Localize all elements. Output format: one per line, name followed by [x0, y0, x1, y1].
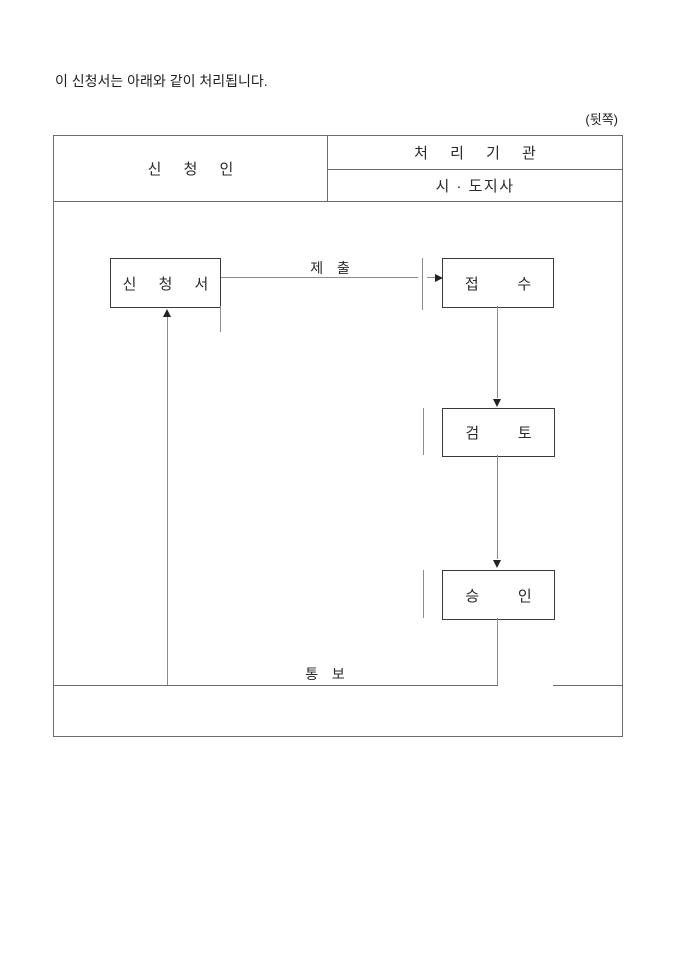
table-right-border: [622, 135, 623, 737]
applicant-header-cell: 신 청 인: [54, 136, 327, 201]
application-box: 신 청 서: [110, 258, 221, 308]
processing-agency-header-cell: 처 리 기 관: [328, 136, 622, 169]
arrow-down-icon: [493, 560, 501, 568]
form-back-page: { "page": { "intro_text": "이 신청서는 아래와 같이…: [0, 0, 680, 962]
review-tick-bar: [423, 408, 424, 455]
header-bottom-divider: [53, 201, 623, 202]
table-left-border: [53, 135, 54, 737]
arrow-right-icon: [435, 274, 443, 282]
arrow-up-icon: [163, 309, 171, 317]
governor-subheader-cell: 시 · 도지사: [328, 170, 622, 201]
approval-box: 승 인: [442, 570, 555, 620]
submit-label: 제 출: [280, 258, 380, 278]
submit-line: [221, 277, 418, 278]
bottom-divider-left-segment: [53, 685, 498, 686]
application-corner-stub: [220, 306, 221, 332]
table-bottom-border: [53, 736, 623, 737]
review-to-approval-line: [497, 455, 498, 559]
notify-up-line: [167, 316, 168, 685]
intro-text: 이 신청서는 아래와 같이 처리됩니다.: [55, 71, 268, 91]
review-box: 검 토: [442, 408, 555, 457]
submit-tick-bar: [422, 258, 423, 310]
bottom-divider-right-segment: [553, 685, 623, 686]
back-side-label: (뒷쪽): [548, 109, 618, 128]
receipt-to-review-line: [497, 306, 498, 398]
receipt-box: 접 수: [442, 258, 554, 308]
arrow-down-icon: [493, 399, 501, 407]
approval-down-line: [497, 618, 498, 685]
approval-tick-bar: [423, 570, 424, 618]
notify-label: 통 보: [275, 664, 375, 684]
